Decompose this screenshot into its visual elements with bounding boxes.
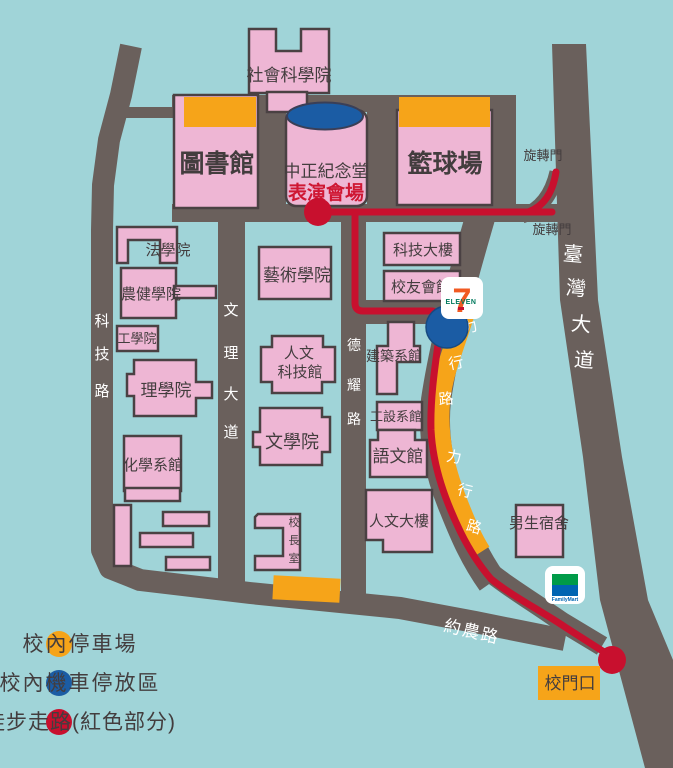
bottom-parking-lot	[272, 575, 340, 602]
building-basketball-court: 籃球場	[397, 97, 492, 205]
svg-text:文學院: 文學院	[265, 432, 319, 452]
campus-map: 科 技 路 文 理 大 道 德 耀 路 臺 灣 大 道 力 行 路 力 行	[0, 0, 673, 768]
svg-text:科技館: 科技館	[277, 364, 322, 381]
svg-text:力: 力	[445, 448, 463, 467]
seven-eleven-mark	[458, 307, 464, 310]
road-connector-3	[492, 95, 516, 222]
svg-text:德: 德	[347, 337, 361, 353]
svg-text:路: 路	[438, 390, 454, 408]
svg-text:籃球場: 籃球場	[407, 149, 482, 178]
road-connector-1	[258, 95, 286, 222]
svg-text:人文: 人文	[284, 345, 314, 362]
svg-text:建築系館: 建築系館	[366, 348, 422, 364]
svg-text:灣: 灣	[565, 276, 587, 301]
walk-start-dot	[304, 198, 332, 226]
svg-text:文: 文	[223, 302, 238, 319]
legend-item-parking: 校內停車場	[23, 631, 138, 657]
legend-item-walk: 徒步走路(紅色部分)	[0, 709, 176, 735]
building-bar-1	[114, 505, 131, 566]
svg-text:圖書館: 圖書館	[179, 149, 254, 178]
svg-text:校: 校	[289, 515, 300, 529]
school-gate: 校門口	[538, 666, 600, 700]
svg-text:大: 大	[223, 386, 238, 403]
revolving-door-label-upper: 旋轉門	[523, 148, 562, 163]
svg-text:男生宿舍: 男生宿舍	[509, 515, 569, 532]
svg-text:理: 理	[223, 345, 238, 362]
svg-text:技: 技	[94, 346, 109, 363]
walk-end-dot	[598, 646, 626, 674]
road-label-deyao: 德 耀 路	[347, 337, 361, 427]
svg-text:臺: 臺	[562, 242, 584, 267]
svg-text:長: 長	[289, 534, 300, 547]
svg-text:室: 室	[289, 551, 300, 565]
svg-text:藝術學院: 藝術學院	[263, 266, 331, 285]
family-mart-green-bar	[552, 574, 578, 585]
basketball-parking-lot	[399, 97, 490, 127]
building-literature: 文學院	[253, 408, 330, 465]
library-parking-lot	[184, 97, 256, 127]
building-bar-4	[140, 533, 193, 547]
family-mart-label: FamilyMart	[552, 597, 579, 603]
legend-label-walk: 徒步走路(紅色部分)	[0, 711, 176, 734]
building-arts: 藝術學院	[259, 247, 331, 299]
svg-text:工學院: 工學院	[117, 331, 156, 346]
revolving-door-label-lower: 旋轉門	[532, 222, 571, 237]
svg-text:大: 大	[570, 312, 592, 337]
svg-text:農健學院: 農健學院	[121, 285, 181, 303]
svg-text:工設系館: 工設系館	[370, 409, 422, 424]
svg-text:路: 路	[347, 411, 361, 427]
legend-label-parking: 校內停車場	[23, 633, 138, 656]
svg-text:語文館: 語文館	[373, 447, 424, 466]
building-cks-hall: 中正紀念堂 表演會場	[284, 103, 369, 207]
building-engineering: 工學院	[117, 326, 158, 351]
svg-text:道: 道	[223, 424, 238, 441]
campus-map-svg: 科 技 路 文 理 大 道 德 耀 路 臺 灣 大 道 力 行 路 力 行	[0, 0, 673, 768]
building-library: 圖書館	[174, 95, 258, 208]
legend-label-scooter: 校內機車停放區	[0, 672, 161, 695]
building-bar-2	[125, 488, 180, 501]
legend-item-scooter: 校內機車停放區	[0, 670, 161, 696]
road-stub-library	[110, 107, 176, 118]
seven-eleven-logo: 7 ELEVEN	[441, 277, 483, 320]
building-tech-building: 科技大樓	[384, 233, 460, 265]
svg-text:耀: 耀	[347, 377, 361, 393]
building-male-dorm: 男生宿舍	[509, 505, 569, 557]
svg-text:理學院: 理學院	[141, 381, 192, 400]
road-connector-2	[367, 95, 398, 222]
building-bar-3	[163, 512, 209, 526]
family-mart-logo: FamilyMart	[545, 566, 585, 604]
svg-text:校門口: 校門口	[545, 674, 596, 693]
svg-text:化學系館: 化學系館	[123, 456, 183, 474]
building-industrial-design: 工設系館	[370, 402, 422, 430]
svg-text:人文大樓: 人文大樓	[369, 513, 429, 530]
svg-text:路: 路	[94, 383, 109, 400]
cks-scooter-parking-ellipse	[287, 103, 363, 130]
building-chemistry: 化學系館	[123, 436, 183, 491]
svg-text:科: 科	[94, 313, 109, 330]
svg-text:法學院: 法學院	[145, 241, 190, 259]
building-bar-5	[166, 557, 210, 570]
svg-text:道: 道	[573, 348, 595, 373]
road-label-keji: 科 技 路	[94, 313, 109, 400]
family-mart-blue-bar	[552, 585, 578, 596]
svg-text:社會科學院: 社會科學院	[247, 66, 332, 85]
seven-eleven-eleven: ELEVEN	[445, 299, 476, 306]
svg-text:中正紀念堂: 中正紀念堂	[284, 161, 369, 181]
svg-text:科技大樓: 科技大樓	[393, 242, 453, 259]
